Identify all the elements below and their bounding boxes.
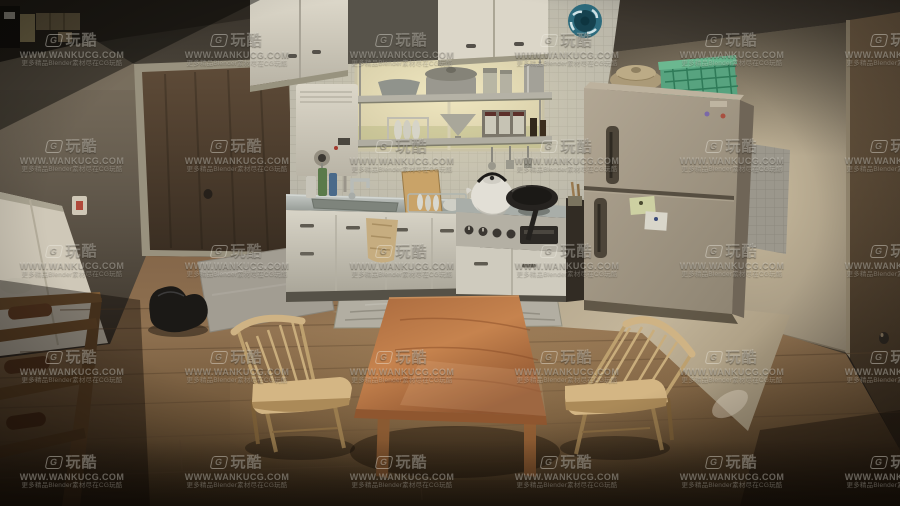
rendered-scene: G玩酷WWW.WANKUCG.COM更多精品Blender素材尽在CG玩酷G玩酷… [0, 0, 900, 506]
room-illustration [0, 0, 900, 506]
vignette [0, 0, 900, 506]
